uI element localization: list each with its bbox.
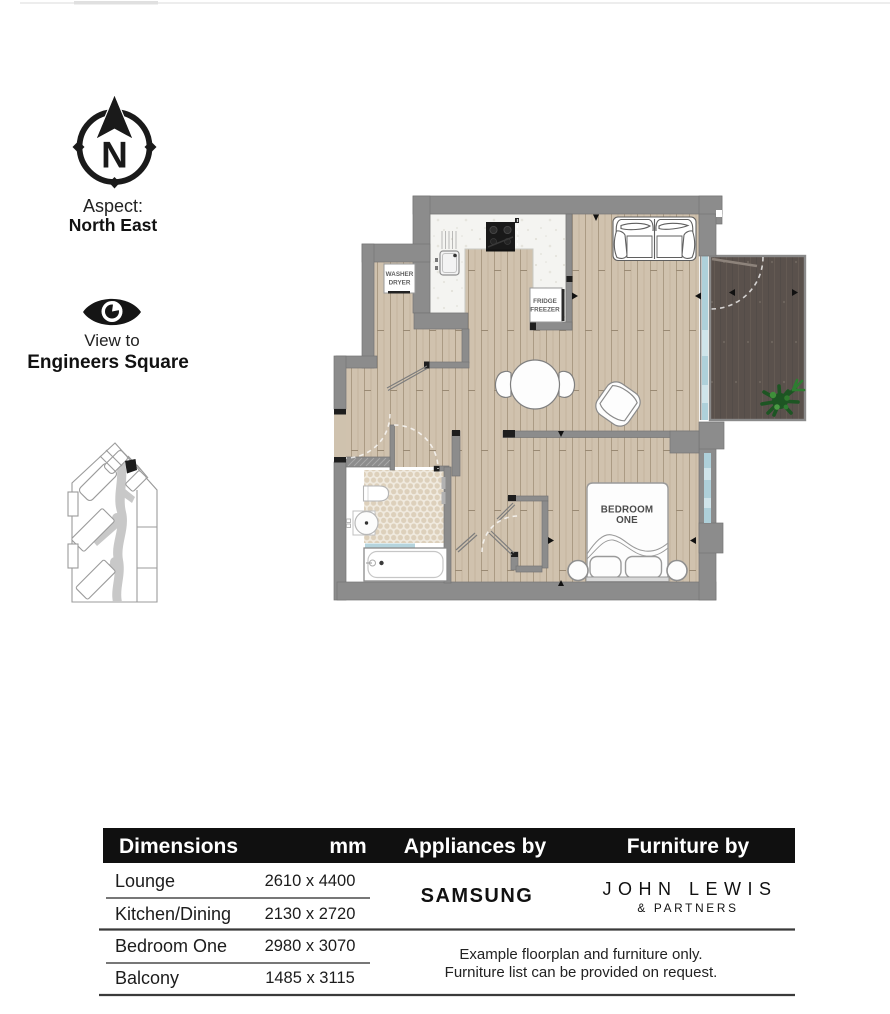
svg-text:2980 x 3070: 2980 x 3070 <box>265 937 356 955</box>
svg-text:Example floorplan and furnitur: Example floorplan and furniture only. <box>459 946 702 963</box>
svg-text:Balcony: Balcony <box>115 968 179 988</box>
svg-text:SAMSUNG: SAMSUNG <box>421 885 534 907</box>
svg-text:Furniture list can be provided: Furniture list can be provided on reques… <box>445 964 718 981</box>
svg-text:View to: View to <box>84 331 139 350</box>
svg-text:2610 x 4400: 2610 x 4400 <box>265 872 356 890</box>
svg-text:Aspect:: Aspect: <box>83 196 143 216</box>
svg-text:ONE: ONE <box>616 515 638 526</box>
svg-text:BEDROOM: BEDROOM <box>601 505 654 516</box>
svg-text:Appliances by: Appliances by <box>404 835 547 858</box>
svg-text:DRYER: DRYER <box>389 280 411 287</box>
svg-text:FREEZER: FREEZER <box>530 307 560 314</box>
svg-text:& PARTNERS: & PARTNERS <box>637 901 738 915</box>
svg-text:FRIDGE: FRIDGE <box>533 298 557 305</box>
svg-text:Dimensions: Dimensions <box>119 835 238 858</box>
svg-text:Kitchen/Dining: Kitchen/Dining <box>115 904 231 924</box>
svg-text:N: N <box>101 135 128 176</box>
svg-text:North East: North East <box>69 215 158 235</box>
svg-text:mm: mm <box>329 835 366 858</box>
svg-text:Lounge: Lounge <box>115 871 175 891</box>
svg-text:Bedroom One: Bedroom One <box>115 936 227 956</box>
svg-text:1485 x 3115: 1485 x 3115 <box>265 969 355 987</box>
svg-text:2130 x 2720: 2130 x 2720 <box>265 905 356 923</box>
svg-text:Furniture by: Furniture by <box>627 835 750 858</box>
svg-text:WASHER: WASHER <box>386 271 414 278</box>
svg-text:JOHN LEWIS: JOHN LEWIS <box>602 879 777 899</box>
svg-text:Engineers Square: Engineers Square <box>27 352 189 373</box>
